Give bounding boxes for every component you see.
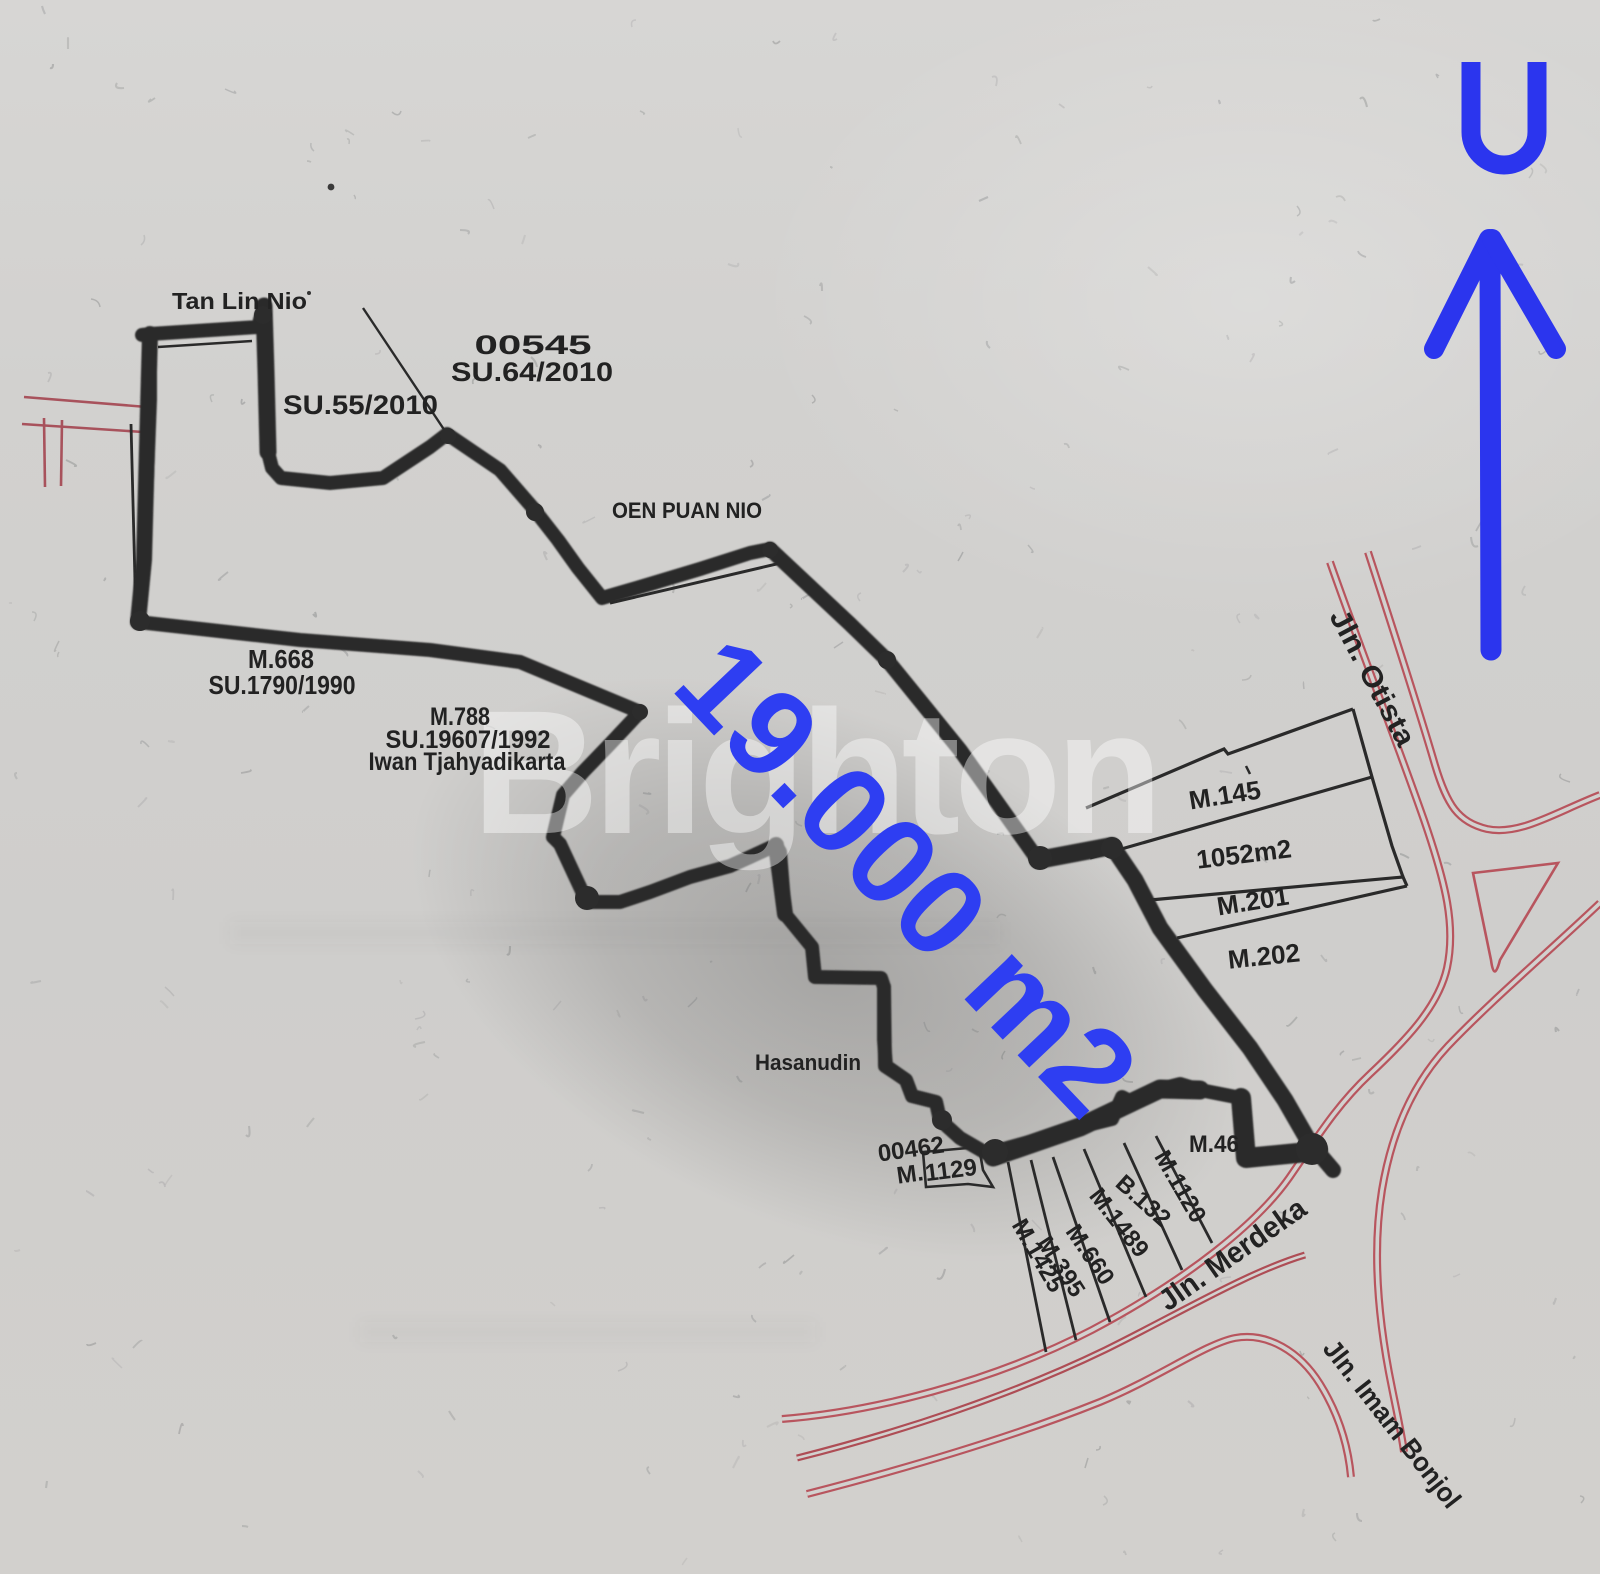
svg-text:Tan Lin Nio: Tan Lin Nio	[172, 288, 307, 314]
svg-text:00545: 00545	[475, 330, 592, 360]
svg-text:SU.55/2010: SU.55/2010	[283, 390, 438, 420]
svg-text:SU.1790/1990: SU.1790/1990	[209, 670, 356, 700]
svg-text:OEN PUAN NIO: OEN PUAN NIO	[612, 498, 762, 523]
svg-text:M.: M.	[895, 1159, 925, 1189]
svg-text:M.46: M.46	[1189, 1131, 1239, 1158]
svg-text:SU.64/2010: SU.64/2010	[451, 357, 613, 387]
svg-text:Hasanudin: Hasanudin	[755, 1050, 861, 1075]
svg-text:Iwan Tjahyadikarta: Iwan Tjahyadikarta	[369, 748, 567, 776]
